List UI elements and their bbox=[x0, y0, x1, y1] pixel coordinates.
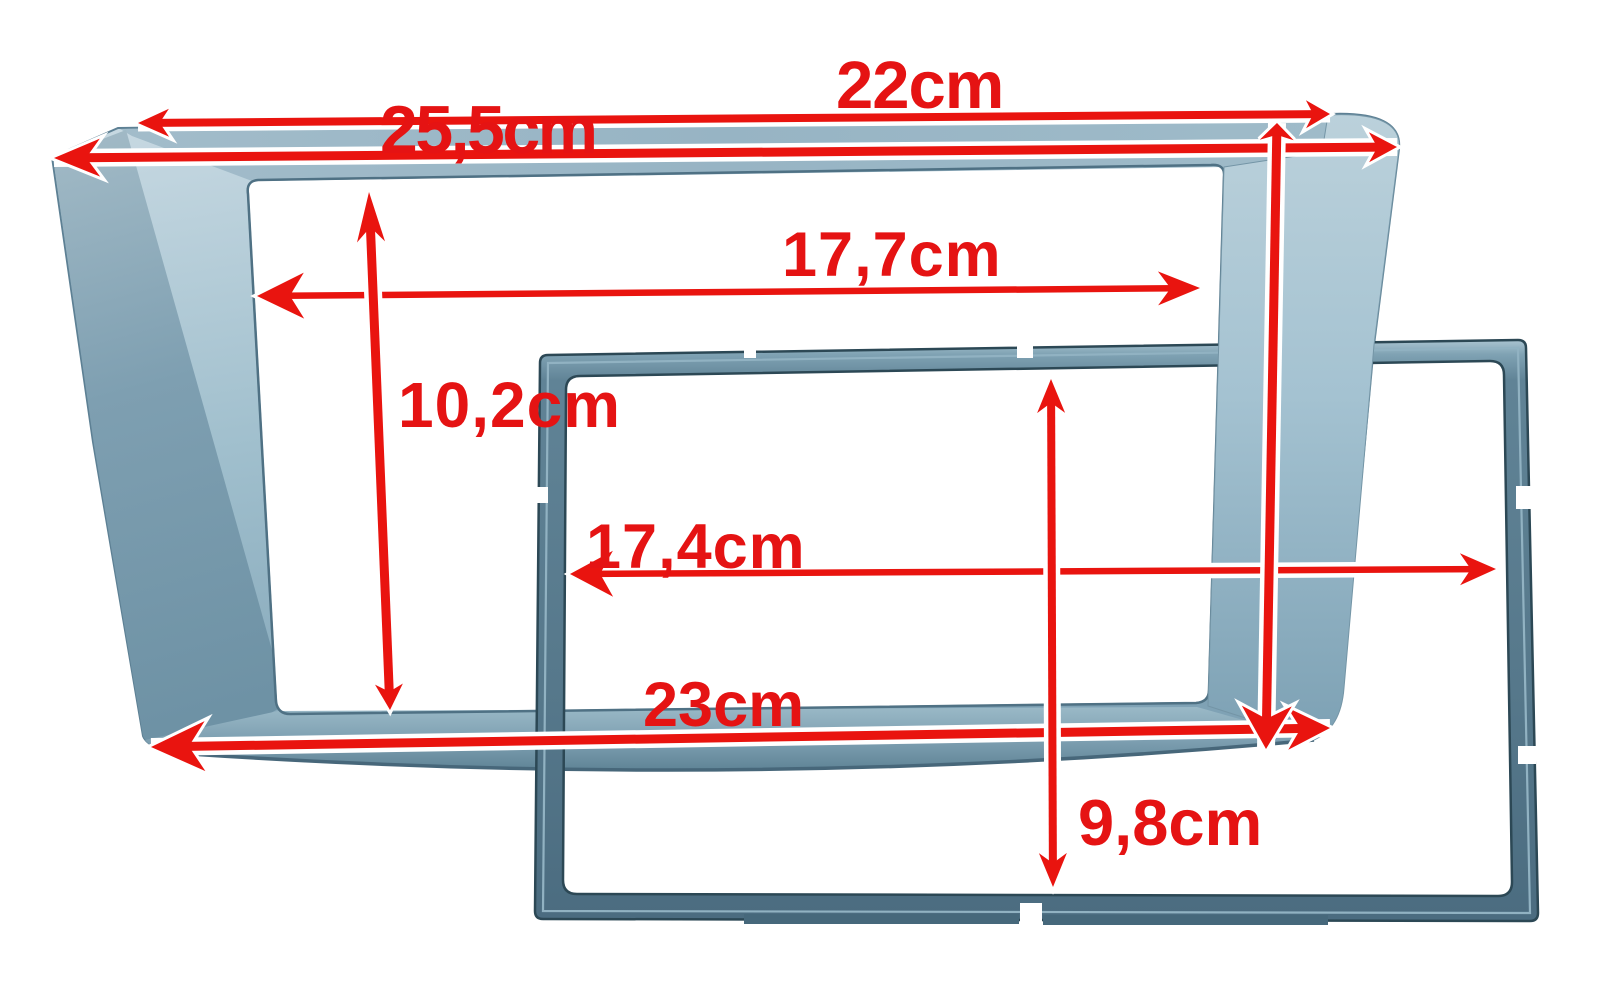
svg-text:17,7cm: 17,7cm bbox=[782, 220, 1002, 290]
svg-text:9,8cm: 9,8cm bbox=[1078, 786, 1262, 859]
svg-text:23cm: 23cm bbox=[643, 670, 804, 740]
svg-text:25,5cm: 25,5cm bbox=[380, 92, 596, 168]
svg-text:22cm: 22cm bbox=[836, 48, 1003, 123]
svg-text:17,4cm: 17,4cm bbox=[586, 512, 806, 582]
svg-text:10,2cm: 10,2cm bbox=[398, 369, 621, 441]
